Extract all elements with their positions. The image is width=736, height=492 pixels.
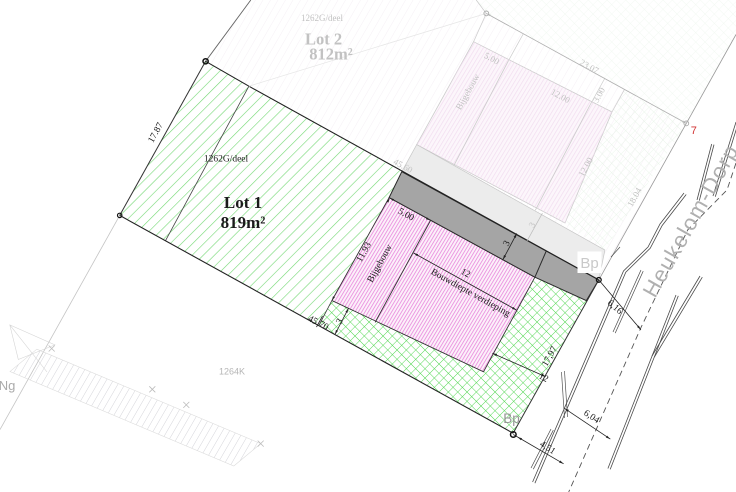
svg-text:Bp: Bp [580,255,598,272]
svg-text:Lot 1: Lot 1 [224,193,262,212]
svg-text:819m²: 819m² [221,213,266,232]
svg-text:Bp: Bp [503,411,520,426]
svg-text:Ng: Ng [0,378,15,393]
svg-text:7: 7 [691,125,697,137]
svg-text:1262G/deel: 1262G/deel [204,155,249,165]
svg-text:1262G/deel: 1262G/deel [301,13,343,23]
svg-text:812m²: 812m² [309,45,352,64]
svg-text:1264K: 1264K [219,367,245,377]
